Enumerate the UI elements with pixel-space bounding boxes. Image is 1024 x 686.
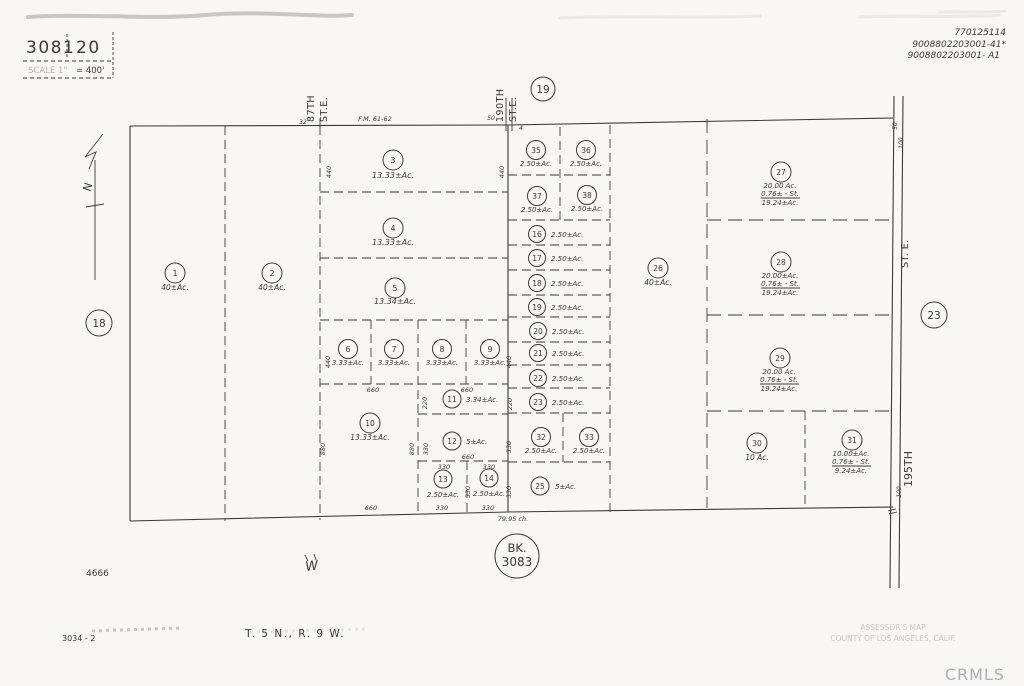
dim-330-d: 330 <box>505 486 513 498</box>
parcel-21-number: 21 <box>533 349 543 358</box>
street-190th-suffix: ST.E. <box>508 97 519 122</box>
parcel-27-gross: 20.00 Ac. <box>763 182 796 190</box>
parcel-35-number: 35 <box>531 146 541 155</box>
scale-value: = 400' <box>76 66 104 76</box>
dim-100-bottomright: 100 <box>896 486 903 498</box>
parcel-38-area: 2.50±Ac. <box>571 205 603 213</box>
parcel-29-number: 29 <box>775 354 785 363</box>
parcel-17-area: 2.50±Ac. <box>551 255 583 263</box>
parcel-16-area: 2.50±Ac. <box>551 231 583 239</box>
parcel-12-number: 12 <box>447 437 457 446</box>
parcel-33-number: 33 <box>584 433 594 442</box>
dim-330-c: 330 <box>464 486 472 498</box>
adjacent-page-north: 19 <box>536 84 549 96</box>
parcel-32-area: 2.50±Ac. <box>525 447 557 455</box>
parcel-36-area: 2.50±Ac. <box>570 160 602 168</box>
parcel-10-area: 13.33±Ac. <box>350 433 389 442</box>
dim-330-h: 330 <box>482 504 494 512</box>
parcel-29-street: 0.76± - St. <box>760 376 798 384</box>
dim-440-c: 440 <box>324 356 332 368</box>
dim-330-g: 330 <box>436 504 448 512</box>
title-block: 3081 20 SCALE 1" = 400' <box>23 32 113 78</box>
parcel-16-number: 16 <box>532 230 542 239</box>
parcel-11-area: 3.34±Ac. <box>466 396 498 404</box>
parcel-31-net: 9.24±Ac. <box>835 467 867 475</box>
fm-reference: F.M. 61-62 <box>358 115 392 123</box>
handwritten-notes: 770125114 9008802203001-41* 900880220300… <box>908 28 1007 61</box>
parcel-division-lines <box>225 119 891 521</box>
parcel-2-number: 2 <box>269 269 274 278</box>
parcel-18-area: 2.50±Ac. <box>551 280 583 288</box>
north-label: N <box>80 181 95 193</box>
parcel-20-area: 2.50±Ac. <box>552 328 584 336</box>
parcel-5-area: 13.34±Ac. <box>374 297 416 306</box>
parcel-20-number: 20 <box>533 327 543 336</box>
dim-220-a: 220 <box>421 397 429 409</box>
parcel-29-gross: 20.00 Ac. <box>762 368 795 376</box>
parcel-4-area: 13.33±Ac. <box>372 238 414 247</box>
parcel-31-street: 0.76± - St. <box>832 458 870 466</box>
dim-330-a: 330 <box>422 443 430 455</box>
township-range: T. 5 N., R. 9 W. <box>244 628 345 640</box>
dim-440-d: 440 <box>505 356 513 368</box>
parcel-28-net: 19.24±Ac. <box>762 289 799 297</box>
dim-4: 4 <box>519 124 523 132</box>
parcel-12-area: 5±Ac. <box>466 438 487 446</box>
parcel-27-net: 19.24±Ac. <box>762 199 799 207</box>
parcel-32-number: 32 <box>536 433 546 442</box>
parcel-8-number: 8 <box>439 345 444 354</box>
parcel-9-area: 3.33±Ac. <box>474 359 506 367</box>
dim-220-b: 220 <box>506 398 514 410</box>
bk-number: 3083 <box>502 555 533 569</box>
parcel-30-number: 30 <box>752 439 762 448</box>
dim-32: 32 <box>299 119 307 126</box>
street-195th-name: 195TH <box>902 451 915 487</box>
dim-660-d: 660 <box>365 504 377 512</box>
ref-number: 4666 <box>86 569 109 579</box>
dim-440-b: 440 <box>498 166 506 178</box>
parcel-2-area: 40±Ac. <box>258 283 285 292</box>
bk-3083-circle: BK. 3083 <box>495 534 539 578</box>
dim-440-a: 440 <box>325 166 333 178</box>
handwriting-line-3: 9008802203001- A1 <box>908 51 1000 61</box>
parcel-13-number: 13 <box>438 475 448 484</box>
street-190th-name: 190TH <box>495 88 506 122</box>
parcel-19-number: 19 <box>532 303 542 312</box>
handwriting-line-1: 770125114 <box>954 28 1006 38</box>
parcel-18-number: 18 <box>532 279 542 288</box>
page-number: 20 <box>76 38 101 58</box>
parcel-14-area: 2.50±Ac. <box>473 490 505 498</box>
handwriting-line-2: 9008802203001-41* <box>912 40 1006 50</box>
parcel-22-area: 2.50±Ac. <box>552 375 584 383</box>
parcel-3-area: 13.33±Ac. <box>372 171 414 180</box>
adjacent-page-east: 23 <box>927 310 940 322</box>
parcel-7-number: 7 <box>391 345 396 354</box>
dim-880-b: 880 <box>408 443 416 455</box>
parcel-19-area: 2.50±Ac. <box>551 304 583 312</box>
street-195th-suffix: ST. E. <box>900 239 911 268</box>
dim-880-a: 880 <box>319 443 327 455</box>
parcel-14-number: 14 <box>484 474 494 483</box>
parcel-labels: 1 40±Ac. 2 40±Ac. 3 13.33±Ac. 4 13.33±Ac… <box>161 141 871 500</box>
parcel-22-number: 22 <box>533 374 543 383</box>
parcel-1-area: 40±Ac. <box>161 283 188 292</box>
scribble-mark: W <box>304 558 320 575</box>
book-number: 3081 <box>26 38 75 58</box>
parcel-6-area: 3.33±Ac. <box>332 359 364 367</box>
street-87th-name: 87TH <box>306 95 317 122</box>
parcel-38-number: 38 <box>582 191 592 200</box>
dim-100-topright: 100 <box>898 137 905 149</box>
north-arrow: N <box>80 134 104 280</box>
parcel-27-street: 0.76± - St. <box>761 190 799 198</box>
bk-prefix: BK. <box>507 541 526 555</box>
parcel-36-number: 36 <box>581 146 591 155</box>
parcel-4-number: 4 <box>390 224 395 233</box>
parcel-31-number: 31 <box>847 436 857 445</box>
parcel-11-number: 11 <box>447 395 457 404</box>
assessor-map-page: 3081 20 SCALE 1" = 400' 770125114 900880… <box>0 0 1024 686</box>
adjacent-page-west: 18 <box>92 318 105 330</box>
parcel-26-area: 40±Ac. <box>644 278 671 287</box>
parcel-27-number: 27 <box>776 168 786 177</box>
parcel-26-number: 26 <box>653 264 663 273</box>
dim-50: 50 <box>487 115 495 122</box>
dim-660-a: 660 <box>367 386 379 394</box>
parcel-37-area: 2.50±Ac. <box>521 206 553 214</box>
sheet-reference: 3034 - 2 <box>62 634 95 643</box>
dim-330-b: 330 <box>505 441 513 453</box>
parcel-21-area: 2.50±Ac. <box>552 350 584 358</box>
parcel-28-street: 0.76± - St. <box>761 280 799 288</box>
parcel-23-number: 23 <box>533 398 543 407</box>
parcel-31-gross: 10.00±Ac. <box>833 450 870 458</box>
assessor-map-line1: ASSESSOR'S MAP <box>860 623 926 632</box>
dim-660-b: 660 <box>461 386 473 394</box>
parcel-30-area: 10 Ac. <box>745 453 769 462</box>
parcel-17-number: 17 <box>532 254 542 263</box>
parcel-25-area: 5±Ac. <box>555 483 576 491</box>
parcel-5-number: 5 <box>392 284 397 293</box>
parcel-33-area: 2.50±Ac. <box>573 447 605 455</box>
dim-50-right: 50 <box>892 122 899 130</box>
parcel-37-number: 37 <box>532 192 542 201</box>
parcel-13-area: 2.50±Ac. <box>427 491 459 499</box>
assessor-map-line2: COUNTY OF LOS ANGELES, CALIF. <box>830 634 955 643</box>
scan-smudges <box>28 11 1005 18</box>
dim-chains: 79.95 ch. <box>498 515 528 523</box>
parcel-35-area: 2.50±Ac. <box>520 160 552 168</box>
parcel-7-area: 3.33±Ac. <box>378 359 410 367</box>
footer-annotations: 4666 W 3034 - 2 T. 5 N., R. 9 W. ASSESSO… <box>62 554 1005 684</box>
parcel-28-number: 28 <box>776 258 786 267</box>
parcel-28-gross: 20.00±Ac. <box>762 272 799 280</box>
parcel-9-number: 9 <box>487 345 492 354</box>
parcel-23-area: 2.50±Ac. <box>552 399 584 407</box>
parcel-3-number: 3 <box>390 156 395 165</box>
dim-660-c: 660 <box>462 453 474 461</box>
parcel-29-net: 19.24±Ac. <box>761 385 798 393</box>
parcel-25-number: 25 <box>535 482 545 491</box>
parcel-8-area: 3.33±Ac. <box>426 359 458 367</box>
scale-label: SCALE 1" <box>28 66 67 76</box>
street-87th-suffix: ST.E. <box>319 97 330 122</box>
parcel-6-number: 6 <box>345 345 350 354</box>
parcel-10-number: 10 <box>365 419 375 428</box>
crmls-watermark: CRMLS <box>945 665 1005 684</box>
parcel-1-number: 1 <box>172 269 177 278</box>
